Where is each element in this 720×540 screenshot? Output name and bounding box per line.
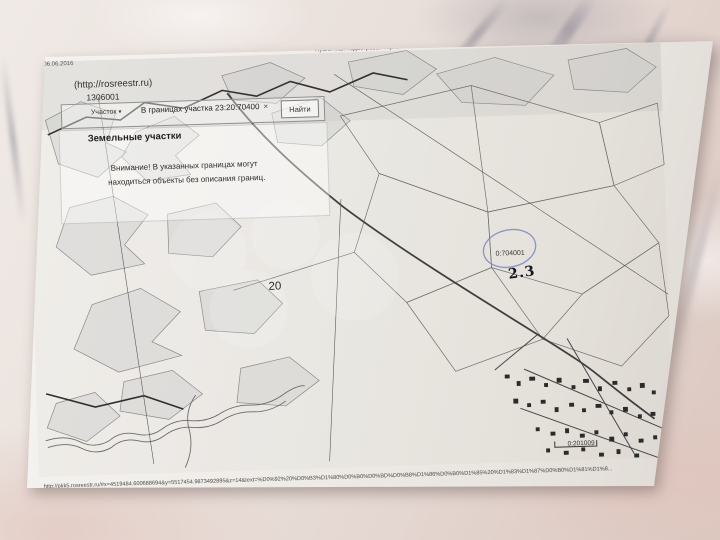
district-number-label: 20 [268, 280, 281, 292]
photo-of-printed-map: 06.06.2016 Публичная кадастровая карта [0, 0, 720, 540]
chevron-down-icon: ▾ [118, 109, 121, 115]
layer-dropdown-label: Участок [91, 109, 117, 117]
layer-dropdown: Участок ▾ [91, 108, 122, 116]
paper-sheet: 06.06.2016 Публичная кадастровая карта [0, 0, 720, 540]
close-icon: × [263, 102, 268, 111]
reference-number: 1306001 [86, 91, 119, 102]
handwritten-place-name: Чубская [682, 383, 709, 460]
village-parcel-number: 0:201009 [567, 440, 594, 448]
printed-content: 06.06.2016 Публичная кадастровая карта [0, 0, 720, 540]
page-number: 1/2 [661, 464, 670, 470]
paper-sheet-wrap: 06.06.2016 Публичная кадастровая карта [0, 0, 720, 540]
circled-parcel-number: 0:704001 [495, 250, 524, 258]
pen-tick-mark [32, 55, 40, 82]
find-button: Найти [281, 99, 320, 118]
